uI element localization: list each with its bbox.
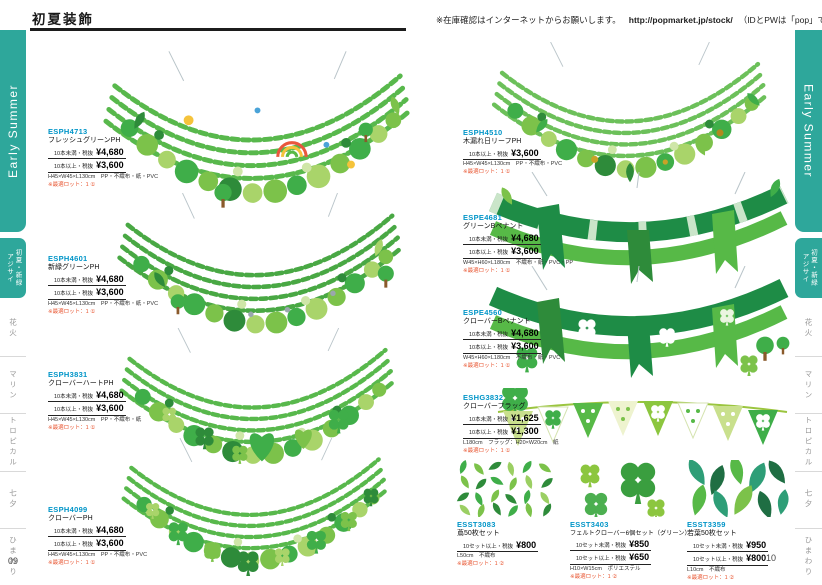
price-label: 10セット未満・税抜 xyxy=(693,544,743,551)
price-label: 10本未満・税抜 xyxy=(469,332,508,339)
sidebar-tab-shoka-shinryoku[interactable]: 初夏・新緑 アジサイ xyxy=(0,238,26,298)
price-value: ¥800 xyxy=(746,553,766,564)
product-name: クローバーBペナント xyxy=(463,318,581,327)
tab-label: 初夏・新緑 xyxy=(809,249,816,287)
product-info-espe4560: ESPE4560 クローバーBペナント 10本未満・税抜¥4,680 10本以上… xyxy=(463,308,581,369)
product-note: ※最適ロット：1 ② xyxy=(457,561,575,568)
price-value: ¥4,680 xyxy=(96,274,124,285)
early-summer-banner: Early Summer xyxy=(0,30,26,232)
price-label: 10本未満・税抜 xyxy=(469,237,508,244)
product-code: ESST3359 xyxy=(687,520,805,529)
price-value: ¥850 xyxy=(629,539,649,550)
price-value: ¥3,600 xyxy=(511,341,539,352)
price-value: ¥3,600 xyxy=(96,160,124,171)
price-value: ¥3,600 xyxy=(511,148,539,159)
product-info-esph3831: ESPH3831 クローバーハートPH 10本未満・税抜¥4,680 10本以上… xyxy=(48,370,166,431)
price-row: 10本未満・税抜¥4,680 xyxy=(48,525,126,537)
sidebar-tabs: 花火 マリン トロピカル 七夕 ひまわり xyxy=(0,300,26,585)
product-note: ※最適ロット：1 ① xyxy=(463,448,581,455)
price-row: 10本未満・税抜¥4,680 xyxy=(463,233,541,245)
price-label: 10本以上・税抜 xyxy=(469,152,508,159)
price-label: 10セット未満・税抜 xyxy=(576,543,626,550)
product-code: ESST3403 xyxy=(570,520,688,529)
product-spec: H45×W45×L130cm PP・不織布・紙 xyxy=(48,417,166,424)
price-row: 10セット以上・税抜¥650 xyxy=(570,552,651,564)
price-row: 10セット以上・税抜¥800 xyxy=(687,553,768,565)
price-row: 10本未満・税抜¥4,680 xyxy=(48,147,126,159)
price-label: 10本以上・税抜 xyxy=(54,542,93,549)
price-value: ¥1,625 xyxy=(511,413,539,424)
price-row: 10本以上・税抜¥3,600 xyxy=(463,246,541,258)
product-name: クローバーPH xyxy=(48,515,166,524)
product-info-esph4099: ESPH4099 クローバーPH 10本未満・税抜¥4,680 10本以上・税抜… xyxy=(48,505,166,566)
product-code: ESPH4099 xyxy=(48,505,166,514)
price-row: 10本以上・税抜¥1,300 xyxy=(463,426,541,438)
sidebar-tab-tropical[interactable]: トロピカル xyxy=(0,414,26,471)
sidebar-tab-marine[interactable]: マリン xyxy=(795,357,822,414)
product-note: ※最適ロット：1 ① xyxy=(463,363,581,370)
product-note: ※最適ロット：1 ② xyxy=(687,575,805,582)
product-code: ESPE4681 xyxy=(463,213,581,222)
price-value: ¥650 xyxy=(629,552,649,563)
tab-label: 花火 xyxy=(8,318,19,339)
sidebar-tab-hanabi[interactable]: 花火 xyxy=(795,300,822,357)
product-note: ※最適ロット：1 ① xyxy=(463,169,581,176)
stock-note-text: ※在庫確認はインターネットからお願いします。 xyxy=(436,15,621,25)
product-info-esst3403: ESST3403 フェルトクローバー6個セット（グリーン） 10セット未満・税抜… xyxy=(570,520,688,580)
product-info-esph4713: ESPH4713 フレッシュグリーンPH 10本未満・税抜¥4,680 10本以… xyxy=(48,127,166,188)
banner-label: Early Summer xyxy=(6,84,20,178)
sidebar-tab-marine[interactable]: マリン xyxy=(0,357,26,414)
tab-label: マリン xyxy=(803,370,814,402)
price-label: 10本未満・税抜 xyxy=(54,394,93,401)
price-value: ¥4,680 xyxy=(511,328,539,339)
price-row: 10本以上・税抜¥3,600 xyxy=(463,341,541,353)
price-value: ¥4,680 xyxy=(96,147,124,158)
ivy-sheet-swatch-image xyxy=(455,460,560,517)
price-label: 10本以上・税抜 xyxy=(469,430,508,437)
product-info-esph4510: ESPH4510 木漏れ日リーフPH 10本以上・税抜¥3,600 H45×W4… xyxy=(463,128,581,176)
tab-label: トロピカル xyxy=(8,416,19,469)
price-row: 10本未満・税抜¥4,680 xyxy=(463,328,541,340)
price-row: 10本未満・税抜¥4,680 xyxy=(48,390,126,402)
sidebar-left: Early Summer 初夏・新緑 アジサイ 花火 マリン トロピカル 七夕 … xyxy=(0,0,26,585)
price-label: 10セット以上・税抜 xyxy=(576,556,626,563)
tab-label: 七夕 xyxy=(8,489,19,510)
product-name: 新緑グリーンPH xyxy=(48,264,166,273)
price-row: 10本以上・税抜¥3,600 xyxy=(48,403,126,415)
price-value: ¥1,300 xyxy=(511,426,539,437)
product-code: ESPH3831 xyxy=(48,370,166,379)
product-info-esst3359: ESST3359 若葉50枚セット 10セット未満・税抜¥950 10セット以上… xyxy=(687,520,805,581)
product-spec: H45×W45×L130cm PP・不織布・紙・PVC xyxy=(48,301,166,308)
product-name: クローバーフラッグ xyxy=(463,403,581,412)
product-code: ESPH4510 xyxy=(463,128,581,137)
early-summer-banner: Early Summer xyxy=(795,30,822,232)
tab-label: 花火 xyxy=(803,318,814,339)
price-label: 10本未満・税抜 xyxy=(54,278,93,285)
tab-label: 初夏・新緑 xyxy=(14,249,21,287)
product-code: ESHG3832 xyxy=(463,393,581,402)
product-spec: W45×H60×L180cm 不織布・紙・PVC・PP xyxy=(463,260,581,267)
price-value: ¥4,680 xyxy=(96,390,124,401)
product-code: ESPE4560 xyxy=(463,308,581,317)
product-spec: W45×H60×L180cm 不織布・紙・PVC xyxy=(463,355,581,362)
price-value: ¥4,680 xyxy=(511,233,539,244)
product-info-esph4601: ESPH4601 新緑グリーンPH 10本未満・税抜¥4,680 10本以上・税… xyxy=(48,254,166,315)
price-row: 10セット以上・税抜¥800 xyxy=(457,540,538,552)
tab-sublabel: アジサイ xyxy=(5,253,12,283)
sidebar-tab-shoka-shinryoku[interactable]: 初夏・新緑 アジサイ xyxy=(795,238,822,298)
price-label: 10セット以上・税抜 xyxy=(463,544,513,551)
price-row: 10セット未満・税抜¥950 xyxy=(687,540,768,552)
price-label: 10本以上・税抜 xyxy=(469,250,508,257)
page-number-left: 09 xyxy=(8,556,18,566)
price-row: 10本未満・税抜¥1,625 xyxy=(463,413,541,425)
price-label: 10本未満・税抜 xyxy=(469,417,508,424)
price-row: 10本以上・税抜¥3,600 xyxy=(463,148,541,160)
product-note: ※最適ロット：1 ② xyxy=(570,574,688,581)
product-name: 木漏れ日リーフPH xyxy=(463,138,581,147)
product-spec: H45×W45×L130cm PP・不織布・PVC xyxy=(463,161,581,168)
sidebar-right: Early Summer 初夏・新緑 アジサイ 花火 マリン トロピカル 七夕 … xyxy=(795,0,822,585)
product-note: ※最適ロット：1 ① xyxy=(48,560,166,567)
price-value: ¥3,600 xyxy=(96,403,124,414)
product-note: ※最適ロット：1 ① xyxy=(48,309,166,316)
felt-clover-set-image xyxy=(570,460,675,517)
product-code: ESPH4601 xyxy=(48,254,166,263)
price-row: 10本未満・税抜¥4,680 xyxy=(48,274,126,286)
product-name: フェルトクローバー6個セット（グリーン） xyxy=(570,530,688,538)
catalog-spread: Early Summer 初夏・新緑 アジサイ 花火 マリン トロピカル 七夕 … xyxy=(0,0,822,585)
product-spec: H45×W45×L130cm PP・不織布・紙・PVC xyxy=(48,174,166,181)
price-label: 10本以上・税抜 xyxy=(54,164,93,171)
product-code: ESST3083 xyxy=(457,520,575,529)
title-rule xyxy=(30,28,406,31)
sidebar-tab-hanabi[interactable]: 花火 xyxy=(0,300,26,357)
young-leaves-sheet-image xyxy=(685,460,790,517)
product-info-espe4681: ESPE4681 グリーンBペナント 10本未満・税抜¥4,680 10本以上・… xyxy=(463,213,581,274)
price-row: 10本以上・税抜¥3,600 xyxy=(48,160,126,172)
product-name: 若葉50枚セット xyxy=(687,530,805,539)
product-info-eshg3832: ESHG3832 クローバーフラッグ 10本未満・税抜¥1,625 10本以上・… xyxy=(463,393,581,454)
sidebar-tab-tropical[interactable]: トロピカル xyxy=(795,414,822,471)
price-label: 10本以上・税抜 xyxy=(469,345,508,352)
price-label: 10本未満・税抜 xyxy=(54,151,93,158)
product-name: グリーンBペナント xyxy=(463,223,581,232)
price-row: 10本以上・税抜¥3,600 xyxy=(48,538,126,550)
product-note: ※最適ロット：1 ① xyxy=(48,425,166,432)
price-row: 10本以上・税抜¥3,600 xyxy=(48,287,126,299)
product-name: フレッシュグリーンPH xyxy=(48,137,166,146)
price-value: ¥950 xyxy=(746,540,766,551)
product-note: ※最適ロット：1 ① xyxy=(463,268,581,275)
price-value: ¥4,680 xyxy=(96,525,124,536)
stock-check-note: ※在庫確認はインターネットからお願いします。http://popmarket.j… xyxy=(436,14,822,26)
product-spec: L180cm フラッグ：H20×W20cm 紙 xyxy=(463,440,581,447)
product-spec: L50cm 不織布 xyxy=(457,553,575,560)
price-value: ¥3,600 xyxy=(96,538,124,549)
banner-label: Early Summer xyxy=(802,84,816,178)
stock-url[interactable]: http://popmarket.jp/stock/ xyxy=(629,15,733,25)
tab-sublabel: アジサイ xyxy=(801,253,808,283)
product-name: 蔦50枚セット xyxy=(457,530,575,539)
price-value: ¥3,600 xyxy=(511,246,539,257)
price-label: 10本以上・税抜 xyxy=(54,407,93,414)
stock-note-suffix: （IDとPWは「pop」です） xyxy=(739,15,822,25)
sidebar-tab-tanabata[interactable]: 七夕 xyxy=(0,472,26,529)
price-value: ¥800 xyxy=(516,540,536,551)
tab-label: トロピカル xyxy=(803,416,814,469)
price-label: 10本以上・税抜 xyxy=(54,291,93,298)
product-code: ESPH4713 xyxy=(48,127,166,136)
price-label: 10セット以上・税抜 xyxy=(693,557,743,564)
tab-label: マリン xyxy=(8,370,19,402)
product-spec: H45×W45×L130cm PP・不織布・PVC xyxy=(48,552,166,559)
product-note: ※最適ロット：1 ① xyxy=(48,182,166,189)
price-label: 10本未満・税抜 xyxy=(54,529,93,536)
product-info-esst3083: ESST3083 蔦50枚セット 10セット以上・税抜¥800 L50cm 不織… xyxy=(457,520,575,568)
page-title: 初夏装飾 xyxy=(32,8,94,28)
product-spec: L10cm 不織布 xyxy=(687,567,805,574)
price-row: 10セット未満・税抜¥850 xyxy=(570,539,651,551)
price-value: ¥3,600 xyxy=(96,287,124,298)
product-spec: H10×W15cm ポリエステル xyxy=(570,566,688,573)
tab-label: 七夕 xyxy=(803,489,814,510)
product-name: クローバーハートPH xyxy=(48,380,166,389)
